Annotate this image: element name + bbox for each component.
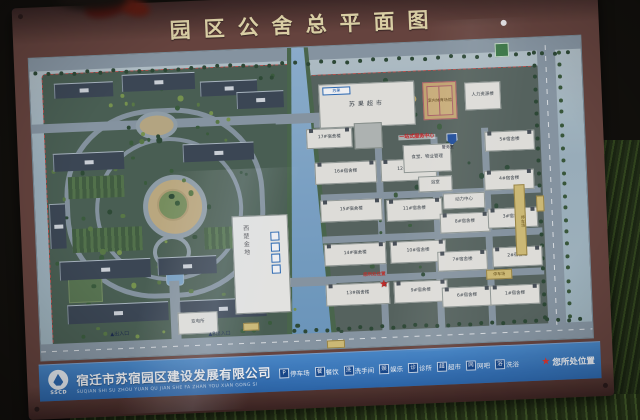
- apartment-building: [53, 151, 125, 172]
- legend-label: 娱乐: [390, 363, 403, 374]
- apartment-building: [122, 72, 196, 92]
- you-are-here-star: ★: [379, 280, 388, 290]
- apartment-building: [59, 258, 151, 281]
- building-label: 西楚金地: [241, 225, 249, 257]
- logo-text: SSCD: [46, 389, 72, 396]
- apartment-building: [236, 90, 284, 109]
- legend-item-超市: 超超市: [437, 361, 461, 372]
- building-label: 食堂、物业管理: [404, 155, 450, 162]
- legend-label: 洗浴: [506, 359, 519, 370]
- building-label: 13#宿舍楼: [327, 290, 389, 298]
- police-label: 警务室: [442, 145, 454, 149]
- company-block: 宿迁市苏宿园区建设发展有限公司 SUQIAN SHI SU ZHOU YUAN …: [76, 361, 272, 394]
- legend-label: 网吧: [477, 360, 490, 371]
- dorm-building: 17#宿舍楼: [306, 127, 353, 149]
- icon-column: [270, 229, 281, 275]
- legend-label: 洗手间: [354, 365, 374, 376]
- building-label: 16#宿舍楼: [316, 169, 376, 176]
- park-sign-chip: [495, 43, 510, 58]
- legend-item-网吧: 网网吧: [466, 360, 490, 371]
- legend-item-娱乐: 娱娱乐: [379, 363, 403, 374]
- restroom-icon: 洗: [343, 365, 353, 375]
- you-are-here-label: 您所处位置: [363, 273, 386, 278]
- building-label: 苏果超市: [320, 99, 414, 110]
- dorm-building: 1#宿舍楼: [490, 284, 541, 306]
- building-label: 6#宿舍楼: [443, 293, 491, 300]
- sports-courts: 室内体育场馆: [422, 81, 458, 120]
- facility-hr-building: 人力资源楼: [464, 81, 501, 110]
- facility-bath-house: 浴室: [418, 175, 453, 192]
- building-label: 动力中心: [444, 197, 484, 204]
- annex-building: [354, 122, 383, 149]
- entertainment-icon: 娱: [379, 364, 389, 374]
- dorm-building: 15#宿舍楼: [320, 198, 383, 223]
- you-are-here-legend: ★ 您所处位置: [541, 354, 595, 368]
- clinic-icon: [271, 253, 280, 262]
- screw: [34, 407, 39, 412]
- screw: [603, 383, 608, 388]
- facility-supermarket-building: 苏果超市苏果: [318, 81, 416, 129]
- building-label: 4#宿舍楼: [485, 176, 533, 183]
- parking-chip: 停车场: [486, 269, 512, 280]
- company-emblem-icon: [48, 369, 69, 390]
- supermarket-logo: 苏果: [322, 86, 350, 95]
- bus-stop-chip: [536, 195, 545, 211]
- company-logo: SSCD: [45, 369, 72, 396]
- building-label: 14#宿舍楼: [325, 251, 385, 258]
- dorm-building: 5#宿舍楼: [484, 130, 535, 152]
- entrance-label: ▲B出入口: [208, 332, 230, 338]
- apartment-building: [67, 301, 169, 324]
- restroom-icon: [270, 231, 279, 240]
- dorm-building: 3#宿舍楼: [487, 207, 538, 229]
- building-label: 7#宿舍楼: [439, 257, 487, 264]
- legend-label: 餐饮: [325, 366, 338, 377]
- building-label: 8#宿舍楼: [441, 219, 489, 226]
- supermarket-icon: 超: [437, 362, 447, 372]
- apartment-building: [157, 255, 217, 275]
- dorm-building: 6#宿舍楼: [442, 286, 493, 308]
- building-label: 人力资源楼: [466, 93, 500, 99]
- apartment-building: [182, 141, 254, 162]
- map-legend: P停车场餐餐饮洗洗手间娱娱乐诊诊所超超市网网吧浴洗浴: [279, 358, 540, 379]
- bus-stop-chip: [243, 322, 259, 331]
- signboard-photo: 园区公舍总平面图: [0, 0, 640, 420]
- building-label: 3#宿舍楼: [489, 214, 537, 221]
- parking-icon: P: [279, 368, 289, 378]
- dorm-building: 11#宿舍楼: [386, 198, 443, 222]
- dorm-building: 14#宿舍楼: [324, 242, 387, 267]
- screw: [18, 14, 23, 19]
- bus-stop-chip: [327, 340, 345, 349]
- sign-board: 园区公舍总平面图: [12, 0, 615, 420]
- dining-icon: [271, 242, 280, 251]
- building-label: 17#宿舍楼: [307, 135, 351, 142]
- legend-label: 超市: [448, 361, 461, 372]
- dorm-building: 16#宿舍楼: [314, 160, 377, 185]
- building-label: 9#宿舍楼: [395, 288, 447, 295]
- legend-item-餐饮: 餐餐饮: [314, 366, 338, 377]
- bath-icon: 浴: [495, 359, 505, 369]
- legend-item-洗浴: 浴洗浴: [495, 359, 519, 370]
- legend-item-停车场: P停车场: [279, 367, 310, 378]
- building-label: 15#宿舍楼: [321, 207, 381, 214]
- building-label: 11#宿舍楼: [387, 206, 441, 213]
- shopping-icon: [272, 264, 281, 273]
- legend-item-洗手间: 洗洗手间: [343, 365, 374, 376]
- entrance-label: ▲出入口: [110, 332, 129, 338]
- dorm-building: 8#宿舍楼: [440, 212, 491, 234]
- star-icon: ★: [541, 357, 550, 367]
- facility-power-center: 动力中心: [443, 192, 486, 210]
- clinic-icon: 诊: [408, 363, 418, 373]
- dorm-building: 9#宿舍楼: [393, 279, 448, 303]
- apartment-building: [49, 203, 67, 249]
- building-label: 变电所: [179, 320, 217, 327]
- dining-icon: 餐: [314, 367, 324, 377]
- commercial-building: 西楚金地: [232, 214, 292, 314]
- apartment-building: [54, 81, 114, 98]
- site-plan-map: 17#宿舍楼16#宿舍楼15#宿舍楼14#宿舍楼13#宿舍楼12#宿舍楼11#宿…: [28, 35, 594, 362]
- building-label: 5#宿舍楼: [486, 137, 534, 144]
- building-label: 1#宿舍楼: [491, 291, 539, 298]
- you-are-here-text: 您所处位置: [552, 354, 595, 368]
- legend-label: 诊所: [419, 362, 432, 373]
- buildings-layer: 17#宿舍楼16#宿舍楼15#宿舍楼14#宿舍楼13#宿舍楼12#宿舍楼11#宿…: [29, 36, 593, 361]
- building-label: 浴室: [419, 181, 451, 187]
- dorm-building: 7#宿舍楼: [437, 250, 488, 272]
- legend-item-诊所: 诊诊所: [408, 362, 432, 373]
- internet-cafe-icon: 网: [466, 360, 476, 370]
- legend-label: 停车场: [290, 367, 310, 378]
- dorm-building: 4#宿舍楼: [484, 169, 535, 191]
